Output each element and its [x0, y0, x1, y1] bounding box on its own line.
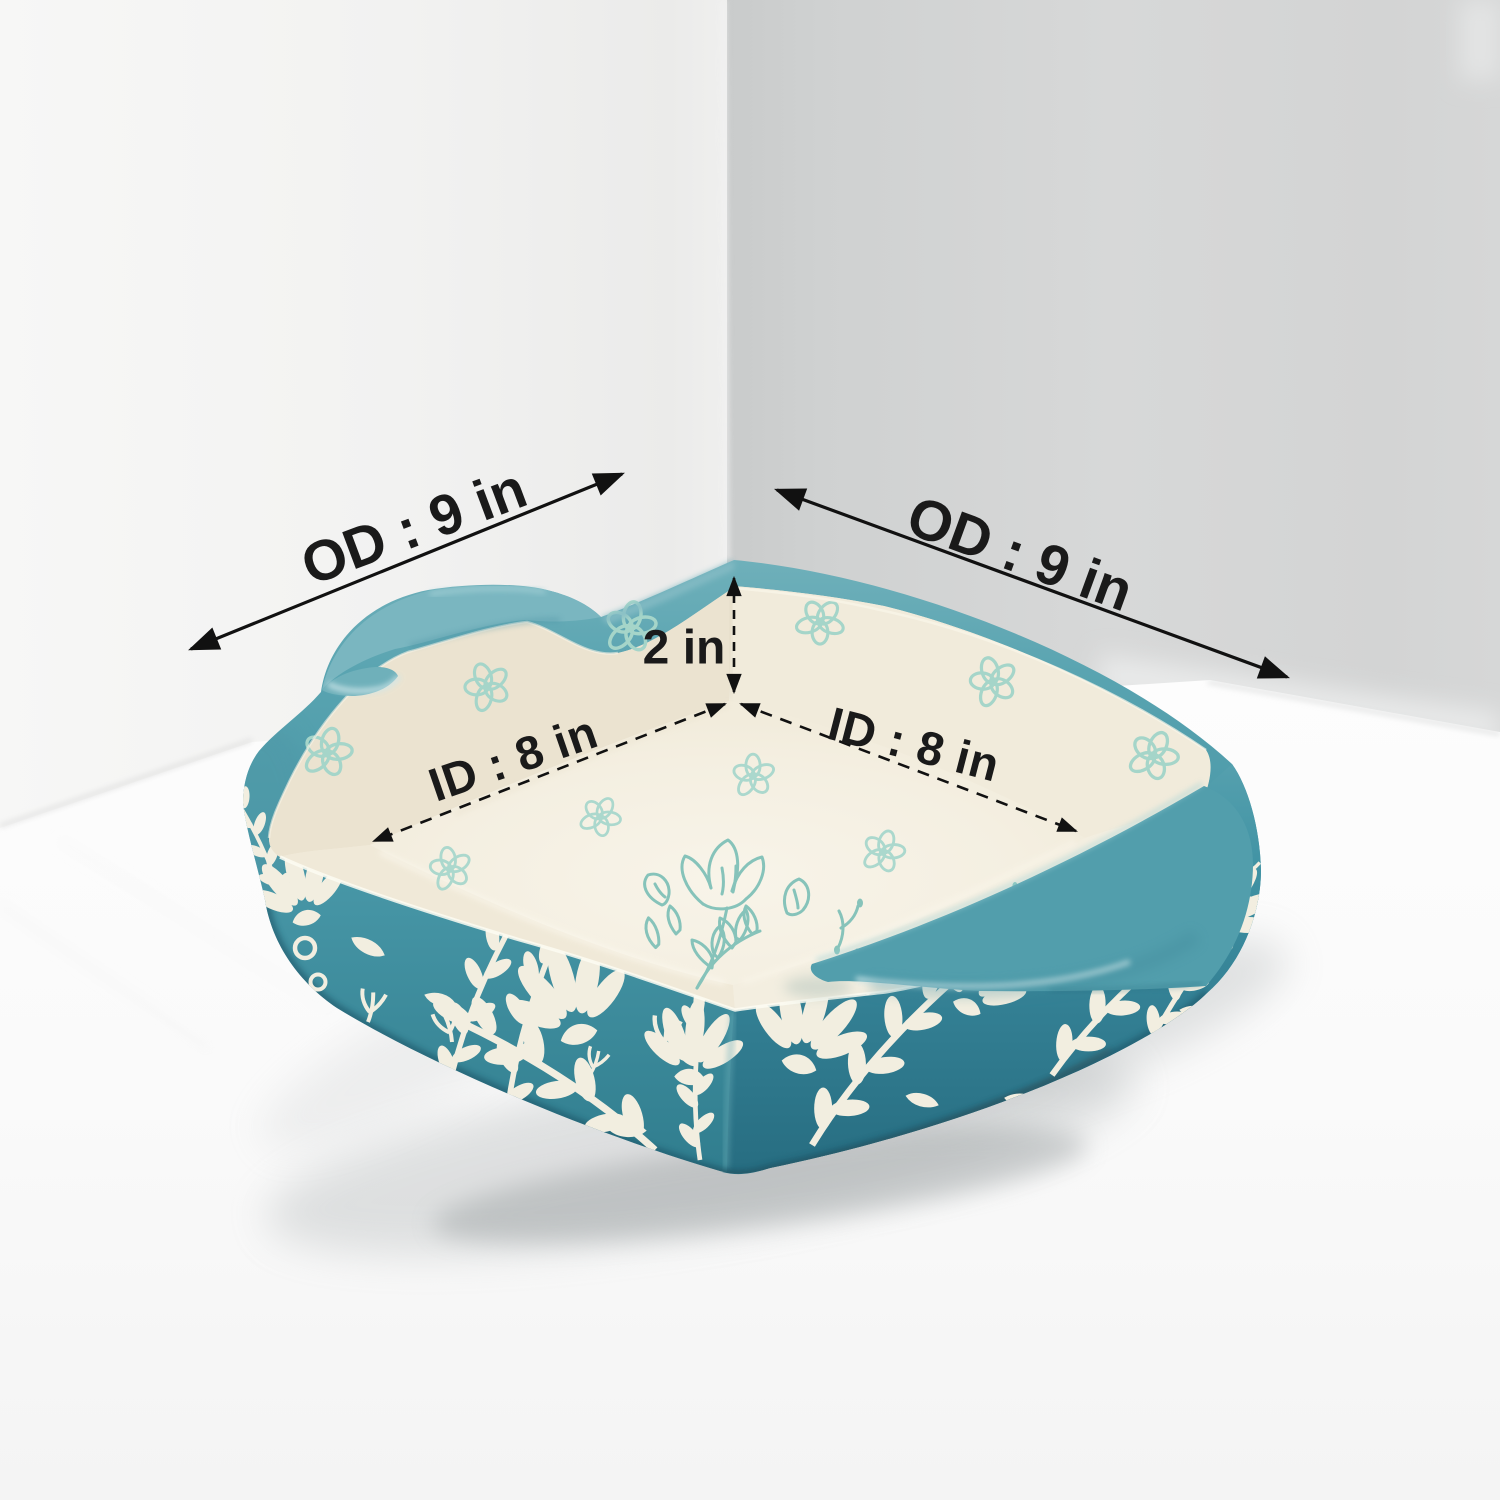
svg-text:2 in: 2 in: [643, 622, 726, 675]
